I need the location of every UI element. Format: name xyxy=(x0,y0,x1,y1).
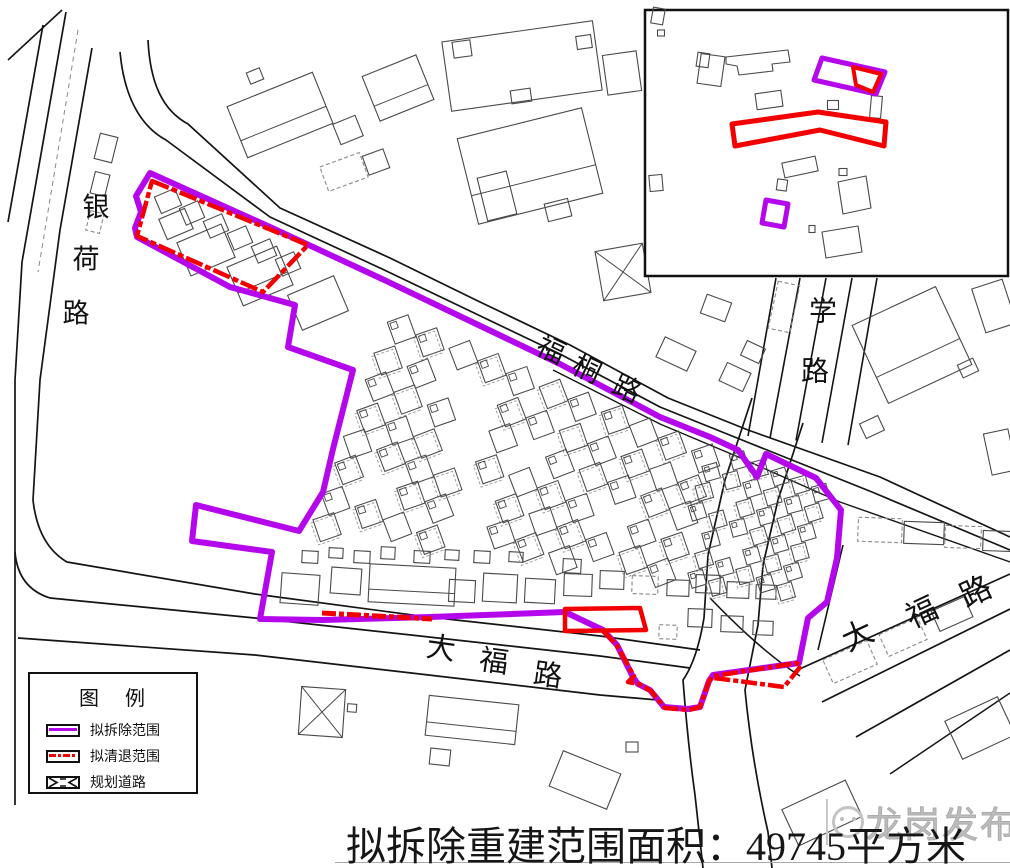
building-outline xyxy=(602,51,641,95)
planned-road-symbol xyxy=(46,776,80,789)
grid-house-notch xyxy=(704,467,710,473)
grid-house xyxy=(431,468,463,500)
grid-house xyxy=(655,431,687,464)
grid-house-notch xyxy=(478,461,486,469)
building-hatch xyxy=(298,687,345,738)
grid-house-notch xyxy=(509,373,517,381)
building-rect xyxy=(659,625,677,640)
building-outline xyxy=(298,687,345,738)
grid-house-ghost xyxy=(414,331,442,360)
building-rect xyxy=(721,616,744,633)
building-rect xyxy=(524,578,555,604)
grid-house-notch xyxy=(427,501,436,510)
grid-house xyxy=(449,340,478,369)
grid-house-notch xyxy=(500,404,509,413)
grid-house xyxy=(669,501,698,530)
road-label-dafu_east: 路 xyxy=(954,569,997,615)
building-outline xyxy=(719,362,751,391)
building-outline xyxy=(425,695,519,744)
road-label-xue: 学 xyxy=(809,295,837,328)
grid-house xyxy=(473,455,505,487)
building-outline xyxy=(347,704,357,713)
grid-house xyxy=(638,488,671,521)
grid-house-notch xyxy=(800,527,806,533)
building-rect xyxy=(448,579,475,602)
building-outline xyxy=(179,201,204,225)
grid-house-notch xyxy=(624,456,632,464)
building-outline xyxy=(368,564,456,606)
grid-house-rect xyxy=(559,423,587,452)
road-dafu-east-edge xyxy=(856,650,1010,737)
grid-house xyxy=(629,418,658,447)
legend-item-clearance: 拟清退范围 xyxy=(30,743,196,769)
grid-house-notch xyxy=(359,410,367,418)
grid-house xyxy=(627,519,656,548)
road-xue-edge xyxy=(770,278,800,438)
grid-house-ghost xyxy=(333,459,362,488)
grid-house xyxy=(616,545,648,577)
grid-house-notch xyxy=(663,538,671,546)
legend-item-demolition: 拟拆除范围 xyxy=(30,717,196,743)
grid-house xyxy=(706,577,728,599)
building-rect xyxy=(330,567,362,595)
grid-house-notch xyxy=(590,443,599,452)
building-rect xyxy=(474,551,491,564)
grid-house-ghost xyxy=(395,485,423,514)
grid-house-notch xyxy=(418,334,426,342)
building-outline xyxy=(354,551,371,564)
grid-house-notch xyxy=(732,455,738,461)
grid-house-notch xyxy=(732,522,738,528)
building-outline xyxy=(600,571,625,590)
building-outline xyxy=(626,742,638,752)
grid-house-notch xyxy=(548,456,557,465)
legend-item-planned-road: 规划道路 xyxy=(30,769,196,795)
building-hatch xyxy=(595,243,651,301)
building-rect xyxy=(576,35,593,50)
grid-house-notch xyxy=(772,538,778,544)
grid-house xyxy=(475,354,507,387)
building-outline xyxy=(227,72,333,157)
grid-house xyxy=(536,379,569,412)
building-rect xyxy=(983,429,1010,475)
grid-house-notch xyxy=(560,526,569,535)
grid-house-rect xyxy=(702,462,721,481)
grid-house-notch xyxy=(419,532,427,540)
building-rect xyxy=(564,574,593,597)
grid-house-rect xyxy=(650,462,678,491)
building-rect xyxy=(656,337,696,371)
grid-house xyxy=(568,392,597,421)
grid-house-ghost xyxy=(375,445,404,474)
building-outline xyxy=(362,55,434,121)
grid-house-notch xyxy=(814,487,820,493)
grid-house xyxy=(371,346,403,378)
building-outline xyxy=(445,550,460,561)
building-outline xyxy=(904,521,945,544)
building-rect xyxy=(347,704,357,713)
road-label-yinhe: 路 xyxy=(63,299,90,330)
building-outline xyxy=(656,337,696,371)
grid-house-rect xyxy=(763,554,782,573)
grid-house-rect xyxy=(715,557,734,576)
building-outline xyxy=(302,551,319,564)
building-outline xyxy=(329,548,344,559)
grid-house xyxy=(425,494,454,523)
building-outline xyxy=(330,567,362,595)
building-rect xyxy=(700,294,731,322)
grid-house-notch xyxy=(568,500,576,508)
grid-house xyxy=(487,520,515,549)
building-outline xyxy=(945,697,1010,760)
grid-house xyxy=(391,385,423,418)
grid-house-notch xyxy=(480,360,488,368)
grid-house xyxy=(332,455,365,488)
inset-frame xyxy=(645,10,1008,276)
grid-house-ghost xyxy=(617,549,645,578)
grid-house xyxy=(598,405,630,437)
area-caption: 拟拆除重建范围面积：49745平方米 xyxy=(346,814,966,868)
grid-house-rect xyxy=(374,346,402,375)
grid-house-notch xyxy=(630,526,638,534)
building-rect xyxy=(179,201,204,225)
building-rect xyxy=(227,72,333,157)
grid-house-notch xyxy=(399,487,407,495)
building-rect xyxy=(549,751,621,809)
grid-house xyxy=(788,475,810,498)
grid-house-rect xyxy=(736,498,755,517)
road-label-dafu_south: 福 xyxy=(477,642,510,680)
building-rect xyxy=(246,68,263,84)
grid-house xyxy=(529,507,557,536)
clearance-line-symbol xyxy=(46,750,80,763)
grid-house-notch xyxy=(690,573,696,579)
grid-house xyxy=(586,532,615,561)
grid-house xyxy=(691,444,719,473)
grid-house xyxy=(526,410,555,439)
grid-house-notch xyxy=(745,550,751,556)
grid-house-notch xyxy=(718,562,724,568)
grid-house-notch xyxy=(650,565,659,574)
building-rect xyxy=(333,115,363,144)
grid-house-ghost xyxy=(476,357,505,386)
building-outline xyxy=(700,294,731,322)
building-rect xyxy=(626,742,638,752)
building-divider xyxy=(369,589,455,594)
building-outline xyxy=(482,573,517,603)
building-rect xyxy=(354,551,371,564)
grid-house-ghost xyxy=(311,516,339,545)
demolition-line-symbol xyxy=(46,724,80,737)
building-rect xyxy=(727,582,750,599)
building-outline xyxy=(429,748,451,766)
grid-house-notch xyxy=(489,526,497,534)
grid-house-notch xyxy=(430,404,438,412)
grid-house-rect xyxy=(383,512,412,541)
grid-house-notch xyxy=(786,499,792,505)
grid-house xyxy=(509,467,538,496)
grid-house-notch xyxy=(745,483,751,489)
building-rect xyxy=(719,362,751,391)
grid-house-notch xyxy=(337,462,346,471)
road-label-yinhe: 银 xyxy=(83,193,110,224)
building-rect xyxy=(320,153,368,192)
building-outline xyxy=(688,609,713,628)
grid-house-notch xyxy=(588,539,596,547)
building-rect xyxy=(957,358,978,378)
grid-house-rect xyxy=(529,507,557,536)
building-rect xyxy=(368,564,456,606)
grid-house xyxy=(801,503,824,526)
grid-house-rect xyxy=(313,513,341,542)
road-label-dafu_south: 路 xyxy=(531,656,564,694)
grid-house-ghost xyxy=(412,432,441,461)
building-rect xyxy=(602,51,641,95)
grid-house xyxy=(576,462,608,495)
grid-house xyxy=(788,542,810,564)
planned-road-glyph xyxy=(48,778,78,787)
grid-house xyxy=(774,514,797,537)
building-outline xyxy=(549,751,621,809)
grid-house-rect xyxy=(777,514,796,533)
building-rect xyxy=(445,550,460,561)
grid-house-rect xyxy=(579,462,608,491)
grid-house-rect xyxy=(394,385,423,414)
building-divider xyxy=(241,106,326,140)
building-rect xyxy=(972,279,1010,333)
building-rect xyxy=(482,573,517,603)
building-rect xyxy=(904,521,945,544)
road-xue-edge xyxy=(848,278,877,445)
grid-house xyxy=(387,315,416,344)
grid-house-notch xyxy=(610,482,618,490)
road-label-dafu_east: 大 xyxy=(836,613,879,659)
grid-house-notch xyxy=(528,417,536,425)
grid-house-notch xyxy=(660,437,668,445)
grid-house-rect xyxy=(434,468,462,497)
building-divider xyxy=(427,722,517,731)
grid-house-notch xyxy=(604,411,612,419)
grid-house-rect xyxy=(619,545,647,574)
building-outline xyxy=(448,579,475,602)
building-rect xyxy=(860,416,885,439)
legend-item-label: 拟清退范围 xyxy=(90,746,160,766)
building-rect xyxy=(688,609,713,628)
building-outline xyxy=(320,153,368,192)
building-rect xyxy=(852,287,972,404)
building-outline xyxy=(474,551,491,564)
grid-house xyxy=(385,416,413,445)
building-outline xyxy=(727,582,750,599)
grid-house-ghost xyxy=(555,523,584,552)
building-outline xyxy=(381,547,396,560)
building-outline xyxy=(564,574,593,597)
grid-house-notch xyxy=(786,566,792,572)
building-outline xyxy=(983,429,1010,475)
building-rect xyxy=(425,695,519,744)
road-label-dafu_east: 福 xyxy=(900,590,943,636)
grid-house xyxy=(374,442,407,475)
building-rect xyxy=(154,188,181,213)
grid-house-notch xyxy=(680,481,689,490)
grid-house-rect xyxy=(791,542,810,561)
grid-house-notch xyxy=(408,461,416,469)
building-rect xyxy=(600,571,625,590)
grid-house xyxy=(489,424,518,453)
grid-house-notch xyxy=(410,365,419,374)
grid-house xyxy=(506,367,534,396)
building-rect xyxy=(94,133,118,163)
grid-house-notch xyxy=(379,449,388,458)
building-outline xyxy=(154,188,181,213)
building-rect xyxy=(381,547,396,560)
grid-house-ghost xyxy=(473,458,501,487)
grid-house-ghost xyxy=(353,503,381,532)
grid-house xyxy=(394,481,426,513)
grid-house-ghost xyxy=(537,383,566,412)
grid-house-notch xyxy=(540,487,548,495)
building-outline xyxy=(972,279,1010,333)
building-outline xyxy=(595,243,651,301)
building-divider xyxy=(374,85,428,107)
legend-title: 图例 xyxy=(30,674,196,717)
building-outline xyxy=(576,35,593,50)
grid-house xyxy=(566,494,594,523)
legend-item-label: 拟拆除范围 xyxy=(90,720,160,740)
road-label-yinhe: 荷 xyxy=(73,245,100,276)
building-rect xyxy=(302,551,319,564)
grid-house-ghost xyxy=(599,409,627,438)
road-label-xue: 路 xyxy=(801,355,829,388)
building-outline xyxy=(246,68,263,84)
building-outline xyxy=(94,133,118,163)
building-outline xyxy=(659,625,677,640)
road-yinhe-dashed xyxy=(38,30,78,272)
grid-house-notch xyxy=(368,379,377,388)
grid-house-rect xyxy=(449,340,478,369)
building-outline xyxy=(860,416,885,439)
building-rect xyxy=(477,171,517,221)
building-outline xyxy=(524,578,555,604)
legend-box: 图例 拟拆除范围 拟清退范围 规划道路 xyxy=(28,672,198,794)
grid-house-notch xyxy=(643,495,652,504)
grid-house-notch xyxy=(694,450,702,458)
building-divider xyxy=(471,165,595,196)
grid-house xyxy=(365,372,394,401)
grid-house-notch xyxy=(498,500,506,508)
grid-house xyxy=(352,499,384,531)
planning-map-screenshot: 银荷路福桐路学路大福路大福路 图例 拟拆除范围 拟清退范围 规划道路 龙岗发布 … xyxy=(0,0,1010,868)
building-outline xyxy=(477,171,517,221)
village-houses-grid xyxy=(310,315,830,604)
building-outline xyxy=(452,40,472,58)
grid-house xyxy=(650,462,678,491)
building-rect xyxy=(442,21,602,111)
building-rect xyxy=(945,697,1010,760)
grid-house xyxy=(747,526,770,549)
inset-map xyxy=(645,7,1008,276)
grid-house-ghost xyxy=(493,497,522,526)
building-rect xyxy=(362,55,434,121)
grid-house-rect xyxy=(804,503,823,522)
grid-house xyxy=(310,513,342,545)
building-outline xyxy=(721,616,744,633)
grid-house-ghost xyxy=(577,466,606,495)
grid-house-ghost xyxy=(513,536,542,565)
grid-house-rect xyxy=(539,379,568,408)
building-rect xyxy=(457,108,602,224)
grid-house xyxy=(774,582,796,605)
grid-house-rect xyxy=(413,429,442,458)
grid-house xyxy=(733,498,755,521)
grid-house-rect xyxy=(669,501,698,530)
grid-house xyxy=(427,398,455,427)
grid-house-rect xyxy=(509,467,538,496)
legend-item-label: 规划道路 xyxy=(90,772,146,792)
grid-house xyxy=(715,557,734,576)
grid-house-notch xyxy=(570,399,578,407)
building-outline xyxy=(852,287,972,404)
building-rect xyxy=(452,40,472,58)
grid-house-rect xyxy=(489,424,518,453)
road-corner xyxy=(8,10,62,60)
grid-house-ghost xyxy=(639,491,668,520)
grid-house xyxy=(405,455,434,484)
grid-house-notch xyxy=(388,422,396,430)
grid-house xyxy=(587,436,616,465)
building-rect xyxy=(429,748,451,766)
road-south-edge xyxy=(745,423,803,868)
building-outline xyxy=(442,21,602,111)
grid-house xyxy=(692,549,715,572)
building-outline xyxy=(957,358,978,378)
grid-house-ghost xyxy=(656,434,685,463)
grid-house-ghost xyxy=(495,401,524,430)
grid-house-notch xyxy=(357,506,365,514)
grid-house-rect xyxy=(777,582,796,601)
grid-house-rect xyxy=(629,418,658,447)
grid-house-rect xyxy=(695,549,714,568)
grid-house xyxy=(407,359,436,388)
grid-house-rect xyxy=(749,526,768,545)
grid-house-notch xyxy=(759,511,765,517)
building-rect xyxy=(329,548,344,559)
grid-house xyxy=(512,533,545,566)
grid-house-ghost xyxy=(535,484,564,513)
grid-house xyxy=(702,462,721,481)
building-outline xyxy=(333,115,363,144)
grid-house-ghost xyxy=(392,388,421,417)
building-outline xyxy=(457,108,602,224)
grid-house-notch xyxy=(518,539,527,548)
grid-house xyxy=(733,566,755,588)
grid-house xyxy=(413,328,445,360)
road-label-dafu_south: 大 xyxy=(424,629,457,667)
grid-house-notch xyxy=(704,534,710,540)
grid-house-notch xyxy=(390,321,398,329)
grid-house xyxy=(414,525,446,558)
grid-house xyxy=(383,512,412,541)
grid-house-ghost xyxy=(415,528,444,557)
building-divider xyxy=(876,339,959,378)
